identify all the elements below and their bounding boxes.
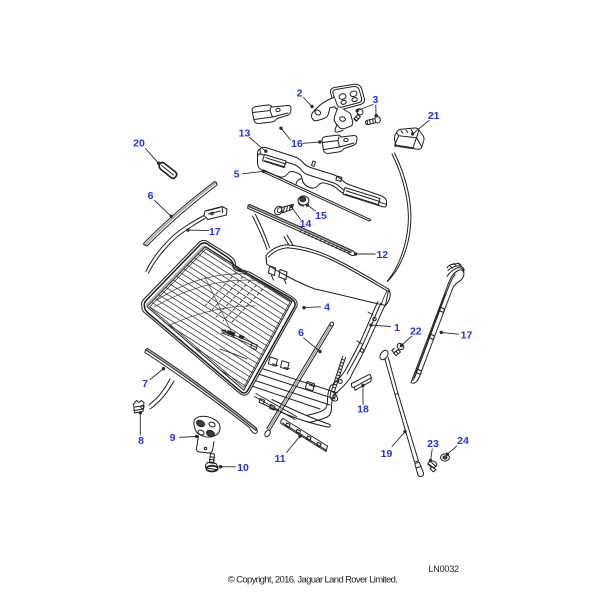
svg-text:8: 8	[138, 435, 144, 447]
svg-text:21: 21	[428, 110, 440, 122]
svg-text:17: 17	[209, 226, 221, 238]
svg-text:7: 7	[142, 378, 148, 390]
svg-text:18: 18	[357, 403, 369, 415]
svg-text:15: 15	[315, 210, 327, 222]
svg-text:19: 19	[381, 448, 393, 460]
svg-text:11: 11	[274, 453, 285, 465]
svg-text:6: 6	[298, 327, 304, 339]
svg-text:24: 24	[457, 435, 469, 447]
svg-text:2: 2	[297, 88, 303, 100]
svg-text:6: 6	[148, 190, 154, 202]
svg-text:9: 9	[170, 432, 176, 444]
svg-text:22: 22	[410, 326, 422, 338]
svg-text:LN0032: LN0032	[429, 564, 460, 574]
svg-text:1: 1	[394, 322, 400, 334]
svg-text:4: 4	[324, 302, 330, 314]
svg-text:20: 20	[133, 137, 145, 149]
svg-text:5: 5	[234, 168, 240, 180]
svg-text:14: 14	[300, 218, 312, 230]
svg-text:3: 3	[372, 94, 378, 106]
svg-text:12: 12	[376, 249, 388, 261]
svg-text:13: 13	[239, 128, 251, 140]
svg-text:16: 16	[291, 138, 303, 150]
svg-text:© Copyright, 2016. Jaguar Land: © Copyright, 2016. Jaguar Land Rover Lim…	[228, 575, 397, 586]
svg-text:23: 23	[427, 438, 439, 450]
svg-text:10: 10	[237, 462, 249, 474]
svg-text:17: 17	[461, 329, 473, 341]
